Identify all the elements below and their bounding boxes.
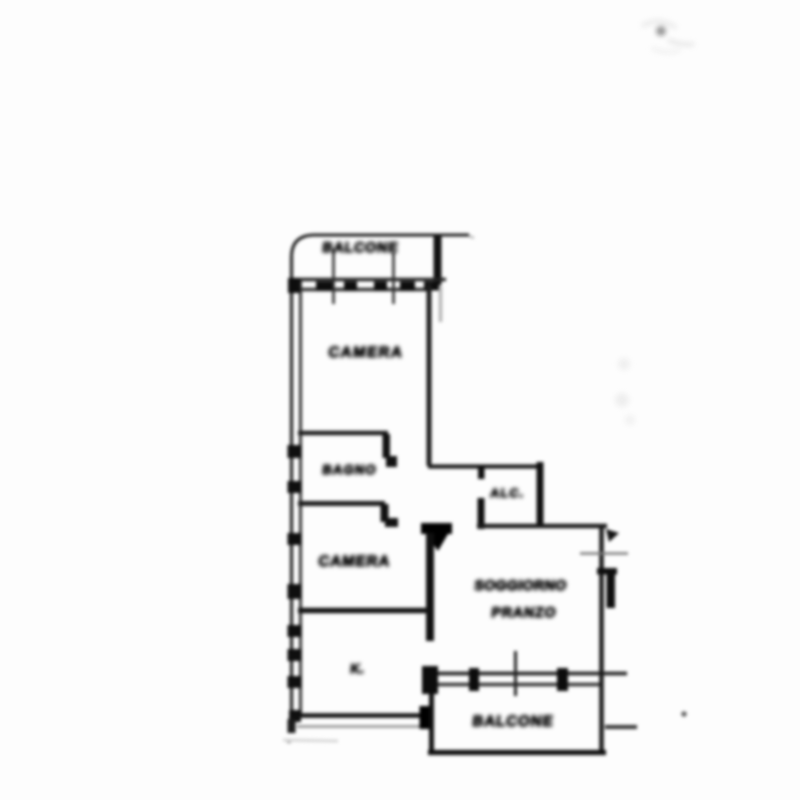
svg-text:BAGNO: BAGNO (322, 462, 378, 477)
svg-text:CAMERA: CAMERA (328, 344, 405, 361)
svg-text:SOGGIORNO: SOGGIORNO (474, 577, 568, 593)
svg-text:PRANZO: PRANZO (491, 604, 558, 620)
svg-text:K.: K. (350, 661, 366, 676)
svg-text:BALCONE: BALCONE (322, 239, 400, 255)
svg-text:CAMERA: CAMERA (318, 553, 392, 570)
svg-text:BALCONE: BALCONE (472, 713, 555, 730)
svg-text:ALC.: ALC. (490, 486, 526, 500)
